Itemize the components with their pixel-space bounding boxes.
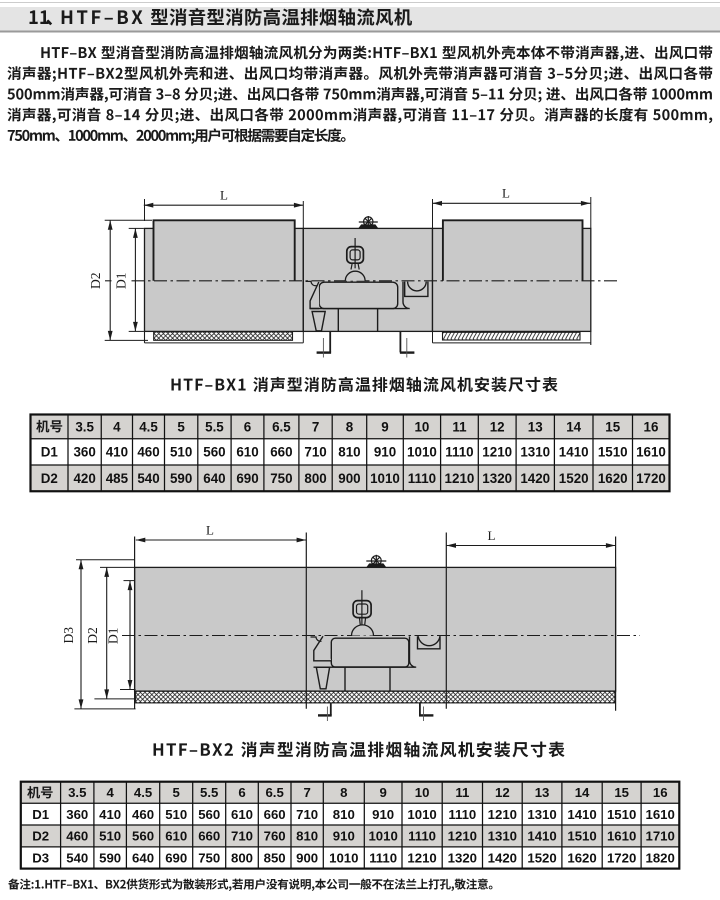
svg-text:8: 8	[340, 785, 347, 800]
svg-text:540: 540	[137, 471, 159, 486]
svg-text:16: 16	[653, 785, 668, 800]
svg-text:1710: 1710	[646, 829, 675, 844]
svg-text:10: 10	[415, 785, 430, 800]
svg-text:1310: 1310	[527, 807, 556, 822]
svg-text:1010: 1010	[329, 850, 358, 865]
svg-text:L: L	[206, 522, 214, 537]
svg-text:910: 910	[372, 807, 394, 822]
svg-text:1510: 1510	[567, 829, 596, 844]
svg-text:12: 12	[490, 419, 505, 434]
svg-text:560: 560	[203, 445, 225, 460]
svg-text:660: 660	[270, 445, 292, 460]
svg-text:1110: 1110	[408, 829, 436, 844]
svg-text:900: 900	[296, 850, 318, 865]
svg-text:4: 4	[106, 785, 114, 800]
svg-text:1010: 1010	[407, 445, 437, 460]
svg-text:610: 610	[236, 445, 258, 460]
svg-text:6.5: 6.5	[265, 785, 283, 800]
svg-text:D2: D2	[85, 627, 100, 644]
svg-text:1010: 1010	[370, 471, 400, 486]
svg-text:460: 460	[137, 445, 159, 460]
svg-text:5.5: 5.5	[205, 419, 224, 434]
svg-text:15: 15	[605, 419, 620, 434]
svg-text:13: 13	[528, 419, 543, 434]
svg-text:1520: 1520	[559, 471, 589, 486]
svg-text:460: 460	[66, 829, 88, 844]
svg-text:D2: D2	[88, 272, 103, 289]
svg-text:1210: 1210	[488, 807, 517, 822]
svg-text:1820: 1820	[646, 850, 675, 865]
svg-text:510: 510	[170, 445, 192, 460]
svg-text:710: 710	[304, 445, 326, 460]
svg-text:690: 690	[165, 850, 187, 865]
svg-text:1210: 1210	[448, 829, 477, 844]
svg-text:410: 410	[106, 445, 128, 460]
svg-text:710: 710	[231, 829, 253, 844]
svg-text:560: 560	[198, 807, 220, 822]
svg-text:5.5: 5.5	[200, 785, 218, 800]
svg-text:6: 6	[244, 419, 251, 434]
svg-text:1510: 1510	[598, 445, 628, 460]
svg-text:1210: 1210	[482, 445, 512, 460]
svg-text:660: 660	[264, 807, 286, 822]
svg-text:10: 10	[414, 419, 429, 434]
svg-text:1620: 1620	[567, 850, 596, 865]
svg-text:1320: 1320	[448, 850, 477, 865]
svg-text:4.5: 4.5	[134, 785, 152, 800]
svg-text:900: 900	[338, 471, 360, 486]
svg-text:11: 11	[452, 419, 467, 434]
svg-text:1410: 1410	[559, 445, 589, 460]
svg-text:750: 750	[270, 471, 292, 486]
svg-text:7: 7	[312, 419, 319, 434]
svg-text:D1: D1	[32, 807, 49, 822]
svg-text:540: 540	[66, 850, 88, 865]
svg-text:910: 910	[374, 445, 396, 460]
svg-text:510: 510	[165, 807, 187, 822]
svg-text:1620: 1620	[598, 471, 628, 486]
svg-text:1610: 1610	[636, 445, 666, 460]
svg-text:7: 7	[303, 785, 310, 800]
svg-text:1520: 1520	[527, 850, 556, 865]
svg-text:D1: D1	[106, 628, 121, 645]
svg-text:5: 5	[173, 785, 180, 800]
svg-text:560: 560	[132, 829, 154, 844]
svg-text:8: 8	[346, 419, 354, 434]
svg-text:15: 15	[614, 785, 629, 800]
svg-text:14: 14	[575, 785, 590, 800]
svg-text:810: 810	[333, 807, 355, 822]
svg-text:3.5: 3.5	[75, 419, 94, 434]
svg-text:610: 610	[165, 829, 187, 844]
svg-text:1420: 1420	[488, 850, 517, 865]
svg-text:1410: 1410	[527, 829, 556, 844]
svg-text:420: 420	[73, 471, 95, 486]
svg-text:810: 810	[338, 445, 360, 460]
svg-text:640: 640	[203, 471, 225, 486]
svg-text:L: L	[502, 186, 510, 201]
svg-text:1720: 1720	[636, 471, 666, 486]
svg-text:800: 800	[304, 471, 326, 486]
svg-text:1310: 1310	[488, 829, 517, 844]
svg-text:640: 640	[132, 850, 154, 865]
svg-text:590: 590	[99, 850, 121, 865]
svg-text:L: L	[488, 528, 496, 543]
svg-text:510: 510	[99, 829, 121, 844]
svg-text:760: 760	[264, 829, 286, 844]
svg-text:4: 4	[113, 419, 121, 434]
svg-text:D1: D1	[114, 272, 129, 289]
svg-text:6: 6	[238, 785, 245, 800]
svg-text:1010: 1010	[368, 829, 397, 844]
svg-text:1010: 1010	[407, 807, 436, 822]
svg-text:410: 410	[99, 807, 121, 822]
svg-text:D1: D1	[41, 445, 59, 460]
svg-text:710: 710	[296, 807, 318, 822]
svg-text:1210: 1210	[445, 471, 475, 486]
svg-text:L: L	[220, 188, 228, 203]
svg-text:3.5: 3.5	[68, 785, 86, 800]
svg-text:4.5: 4.5	[139, 419, 158, 434]
svg-text:810: 810	[296, 829, 318, 844]
svg-text:360: 360	[66, 807, 88, 822]
svg-text:1410: 1410	[567, 807, 596, 822]
svg-text:1210: 1210	[407, 850, 436, 865]
svg-text:1110: 1110	[445, 445, 473, 460]
svg-text:1310: 1310	[520, 445, 550, 460]
svg-text:750: 750	[198, 850, 220, 865]
svg-text:12: 12	[495, 785, 510, 800]
svg-text:D2: D2	[41, 471, 58, 486]
svg-text:9: 9	[381, 419, 388, 434]
svg-text:360: 360	[73, 445, 95, 460]
svg-text:1510: 1510	[607, 807, 636, 822]
svg-text:460: 460	[132, 807, 154, 822]
svg-text:1720: 1720	[607, 850, 636, 865]
svg-text:660: 660	[198, 829, 220, 844]
svg-text:800: 800	[231, 850, 253, 865]
svg-text:9: 9	[379, 785, 386, 800]
svg-text:5: 5	[177, 419, 185, 434]
svg-text:1610: 1610	[607, 829, 636, 844]
svg-text:1420: 1420	[520, 471, 550, 486]
svg-text:D3: D3	[61, 627, 76, 644]
svg-text:1110: 1110	[408, 471, 436, 486]
svg-text:610: 610	[231, 807, 253, 822]
svg-text:1610: 1610	[646, 807, 675, 822]
svg-text:D2: D2	[32, 829, 49, 844]
svg-text:13: 13	[535, 785, 550, 800]
svg-text:910: 910	[333, 829, 355, 844]
svg-text:1110: 1110	[448, 807, 476, 822]
svg-text:1320: 1320	[482, 471, 512, 486]
svg-text:690: 690	[236, 471, 258, 486]
svg-text:16: 16	[644, 419, 659, 434]
svg-text:590: 590	[170, 471, 192, 486]
svg-text:1110: 1110	[369, 850, 397, 865]
svg-text:D3: D3	[32, 850, 49, 865]
svg-text:850: 850	[264, 850, 286, 865]
svg-text:6.5: 6.5	[272, 419, 291, 434]
svg-text:14: 14	[566, 419, 581, 434]
svg-text:11: 11	[455, 785, 469, 800]
svg-text:485: 485	[106, 471, 129, 486]
